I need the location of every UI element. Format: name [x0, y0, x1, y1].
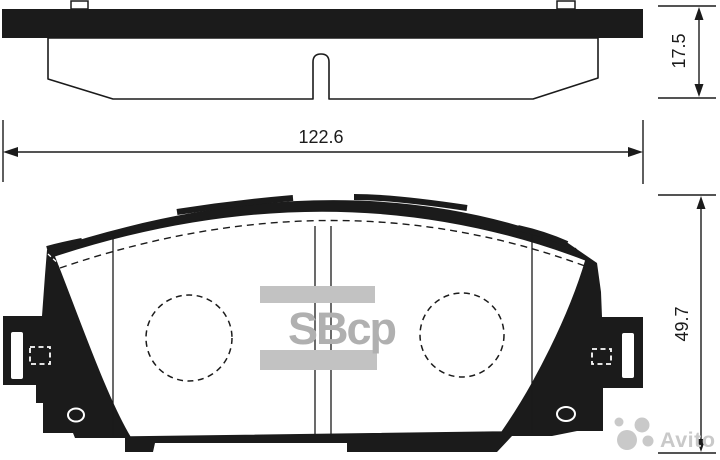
- marketplace-watermark-text: Avito: [660, 428, 715, 452]
- brand-watermark-top-bar: [260, 286, 375, 303]
- left-ear-slot: [11, 332, 23, 379]
- side-view-friction-profile: [48, 38, 598, 99]
- arrow-left-icon: [3, 147, 18, 157]
- product-drawing-canvas: 17.5 122.6: [0, 0, 720, 460]
- side-view-right-tab: [557, 1, 575, 9]
- right-ear-slot: [622, 333, 634, 378]
- brake-pad-drawing: 17.5 122.6: [0, 0, 720, 460]
- dim-thickness-label: 17.5: [669, 33, 689, 68]
- side-view-backing-plate: [2, 9, 643, 38]
- side-view: [2, 1, 643, 99]
- arrow-up-icon: [697, 196, 706, 209]
- side-view-left-tab: [71, 1, 88, 9]
- arrow-down-icon: [695, 84, 704, 97]
- dim-width-label: 122.6: [298, 127, 343, 147]
- avito-dots-icon: [615, 418, 654, 451]
- arrow-up-icon: [695, 7, 704, 20]
- dim-height-label: 49.7: [672, 306, 692, 341]
- brand-watermark-text: SBcp: [288, 303, 396, 354]
- arrow-right-icon: [628, 147, 643, 157]
